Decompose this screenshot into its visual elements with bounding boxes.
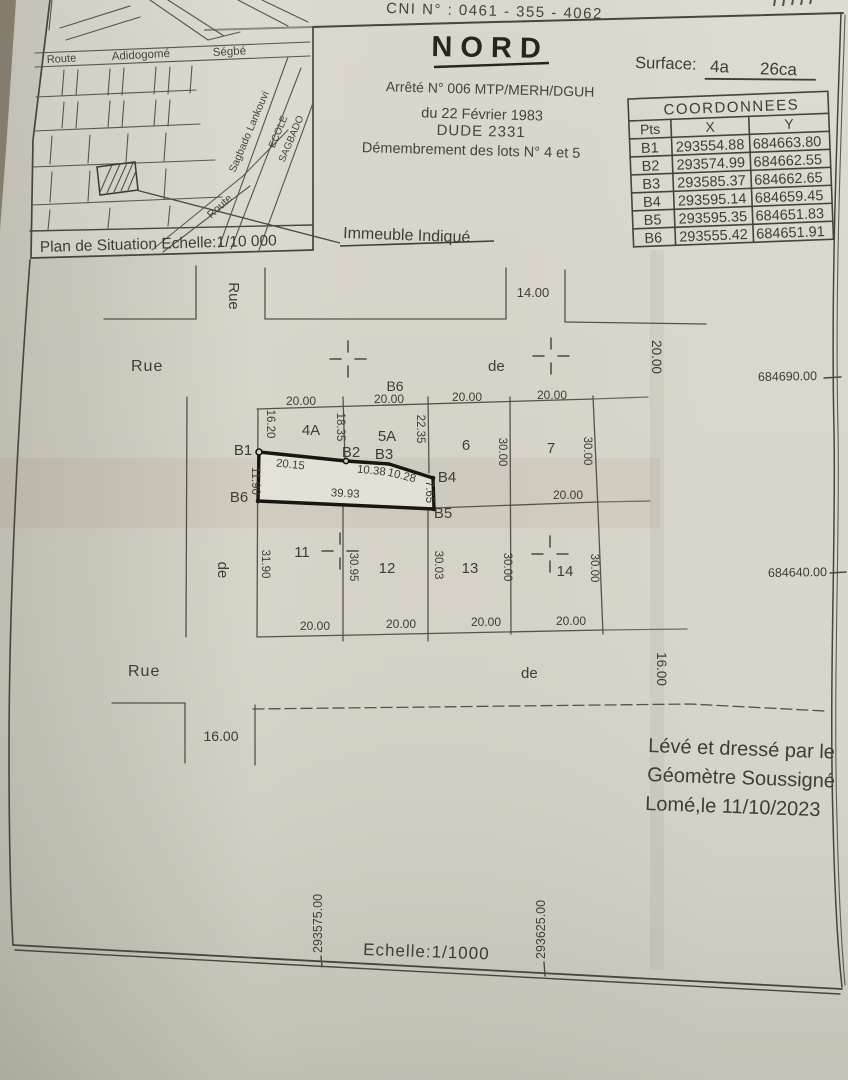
map-label-route: Route bbox=[47, 52, 77, 66]
dim-label: 20.00 bbox=[556, 614, 586, 628]
dim-label: 20.00 bbox=[386, 617, 416, 631]
scanned-survey-plan-photo: CNI N° : 0461 - 355 - 4062 bbox=[0, 0, 848, 1080]
dim-label: 18.35 bbox=[334, 413, 346, 442]
street-rue-top: Rue bbox=[131, 358, 163, 375]
table-cell: 684651.91 bbox=[756, 224, 825, 243]
street-width-14: 14.00 bbox=[517, 285, 550, 300]
dim-label: 39.93 bbox=[330, 487, 359, 500]
table-cell: 684662.55 bbox=[753, 152, 822, 171]
table-cell: 293595.14 bbox=[678, 191, 747, 210]
point-label-b5: B5 bbox=[434, 505, 452, 522]
point-label-b4: B4 bbox=[438, 469, 456, 486]
table-cell: 684662.65 bbox=[754, 170, 823, 189]
dim-label: 30.03 bbox=[432, 551, 444, 580]
point-label-b6: B6 bbox=[230, 489, 248, 506]
surveyor-block: Lévé et dressé par le Géomètre Soussigné… bbox=[645, 735, 836, 821]
point-label-b1: B1 bbox=[234, 442, 252, 459]
decree-line3: DUDE 2331 bbox=[436, 122, 525, 141]
table-cell: 684663.80 bbox=[753, 134, 822, 153]
surface-value-ca: 26ca bbox=[760, 59, 798, 79]
grid-label-right-bottom: 684640.00 bbox=[768, 565, 827, 580]
map-label-segbe: Ségbé bbox=[213, 45, 247, 59]
table-cell: 293595.35 bbox=[678, 209, 747, 228]
dim-label: 7.65 bbox=[423, 481, 435, 503]
survey-plan-canvas: CNI N° : 0461 - 355 - 4062 bbox=[0, 0, 848, 1080]
point-marker-b1 bbox=[256, 449, 262, 455]
lot-label-6: 6 bbox=[462, 437, 470, 454]
lot-label-14: 14 bbox=[557, 563, 574, 580]
street-width-16-right: 16.00 bbox=[654, 652, 669, 686]
table-cell: B2 bbox=[641, 158, 659, 175]
lot-label-4a: 4A bbox=[302, 422, 320, 439]
dim-label: 31.90 bbox=[259, 550, 271, 579]
dim-label: 20.00 bbox=[537, 388, 567, 402]
dim-lot7-south: 20.00 bbox=[553, 488, 583, 502]
lot-label-12: 12 bbox=[379, 560, 396, 577]
dim-label: 30.00 bbox=[581, 437, 593, 466]
dim-label: 20.00 bbox=[374, 392, 404, 406]
dim-label: 20.00 bbox=[471, 615, 501, 629]
grid-label-bottom-left: 293575.00 bbox=[311, 894, 325, 953]
dim-label: 20.00 bbox=[300, 619, 330, 633]
table-col-y: Y bbox=[784, 116, 795, 132]
dim-label: 20.00 bbox=[286, 394, 316, 408]
point-marker-b4 bbox=[431, 476, 436, 481]
lot-label-7: 7 bbox=[547, 440, 555, 457]
table-cell: 293554.88 bbox=[676, 137, 745, 156]
dim-label: 22.35 bbox=[414, 415, 426, 444]
grid-label-right-top: 684690.00 bbox=[758, 369, 817, 384]
grid-label-bottom-right: 293625.00 bbox=[534, 900, 548, 959]
street-de-top: de bbox=[488, 358, 505, 375]
dim-label: 30.00 bbox=[588, 554, 600, 583]
dim-label: 16.20 bbox=[264, 410, 276, 439]
street-rue-bottom: Rue bbox=[128, 663, 160, 680]
dim-label: 20.00 bbox=[452, 390, 482, 404]
table-cell: B6 bbox=[644, 230, 662, 247]
dim-label: 30.00 bbox=[501, 553, 513, 582]
table-cell: 684651.83 bbox=[755, 206, 824, 225]
dim-label: 30.00 bbox=[496, 438, 508, 467]
table-cell: B5 bbox=[643, 212, 661, 229]
dim-label: 11.90 bbox=[249, 467, 261, 495]
table-cell: B4 bbox=[643, 194, 661, 211]
lot-label-11: 11 bbox=[294, 544, 310, 561]
street-width-20: 20.00 bbox=[649, 340, 664, 374]
surface-label: Surface: bbox=[635, 54, 697, 74]
street-rue-vertical: Rue bbox=[225, 282, 242, 310]
table-cell: 293555.42 bbox=[679, 227, 748, 246]
surface-value-a: 4a bbox=[710, 57, 730, 77]
table-cell: B3 bbox=[642, 176, 660, 193]
point-label-b3: B3 bbox=[375, 446, 393, 463]
page-title: NORD bbox=[431, 31, 549, 65]
street-de-vertical: de bbox=[214, 562, 231, 579]
street-width-16-left: 16.00 bbox=[203, 728, 238, 744]
point-label-b2: B2 bbox=[342, 444, 360, 461]
table-col-x: X bbox=[705, 119, 716, 135]
dim-label: 30.95 bbox=[347, 553, 359, 582]
situation-map: Route Adidogomé Ségbé Sagbado Lankouvi E… bbox=[30, 0, 313, 258]
table-col-pts: Pts bbox=[640, 121, 661, 138]
table-cell: 293574.99 bbox=[676, 155, 745, 174]
street-de-bottom: de bbox=[521, 665, 538, 682]
lot-label-5a: 5A bbox=[378, 428, 396, 445]
table-cell: 293585.37 bbox=[677, 173, 746, 192]
table-cell: 684659.45 bbox=[755, 188, 824, 207]
lot-label-13: 13 bbox=[462, 560, 479, 577]
table-cell: B1 bbox=[641, 140, 659, 157]
point-marker-b6 bbox=[256, 499, 261, 504]
